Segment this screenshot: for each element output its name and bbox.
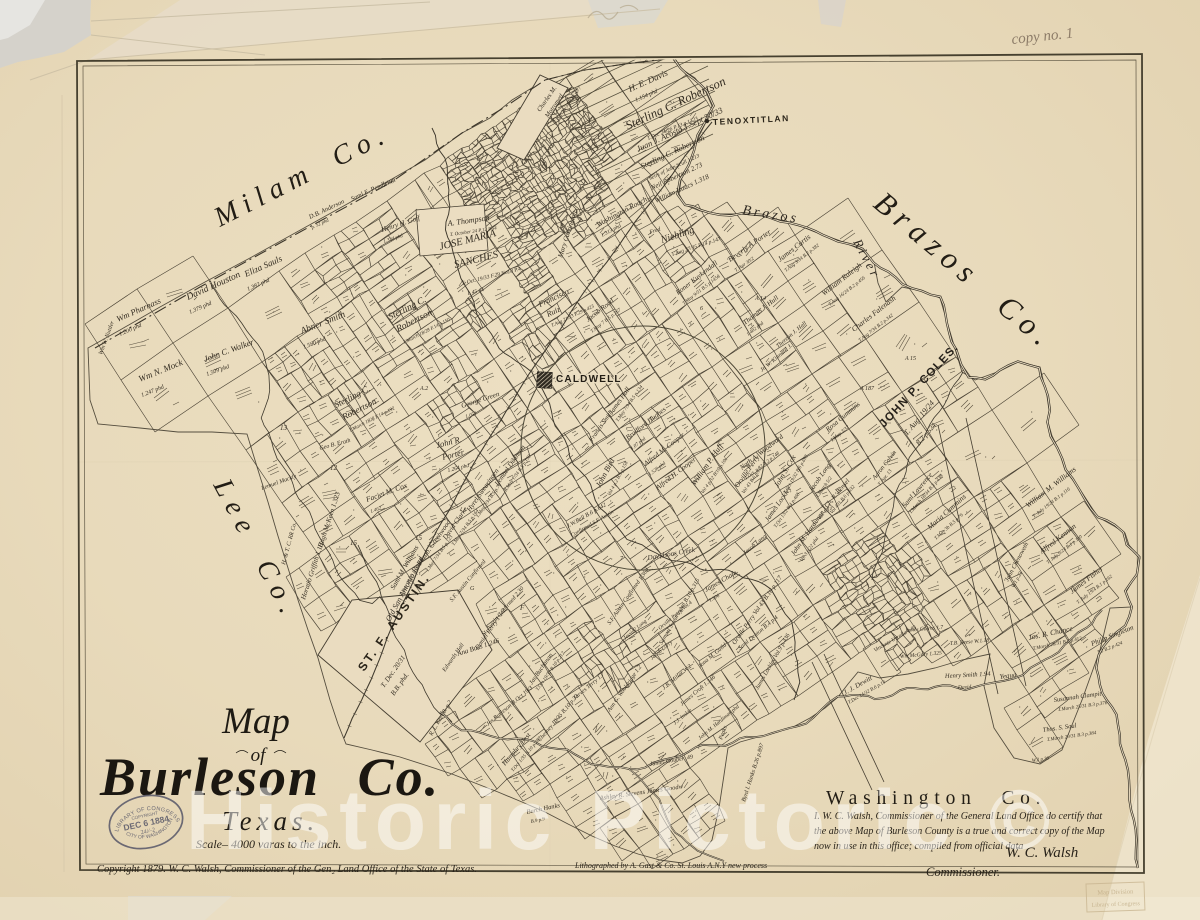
svg-text:Historic Pictoric ©: Historic Pictoric © — [186, 773, 1058, 867]
svg-text:A 187: A 187 — [859, 386, 875, 392]
svg-text:Commissioner.: Commissioner. — [926, 865, 1000, 879]
svg-text:15: 15 — [350, 539, 358, 547]
svg-text:F: F — [519, 604, 525, 612]
svg-text:Map Division: Map Division — [1097, 888, 1134, 896]
svg-text:6: 6 — [700, 306, 703, 312]
svg-text:13: 13 — [280, 424, 288, 432]
svg-text:A.2: A.2 — [419, 386, 428, 392]
svg-text:G: G — [470, 586, 475, 592]
svg-text:David: David — [957, 684, 972, 691]
svg-text:Map: Map — [221, 701, 290, 742]
svg-text:A 14: A 14 — [754, 295, 766, 302]
svg-text:A 15: A 15 — [904, 356, 916, 362]
svg-text:15: 15 — [415, 534, 423, 542]
svg-text:CALDWELL: CALDWELL — [556, 374, 622, 385]
svg-text:12: 12 — [330, 464, 338, 472]
